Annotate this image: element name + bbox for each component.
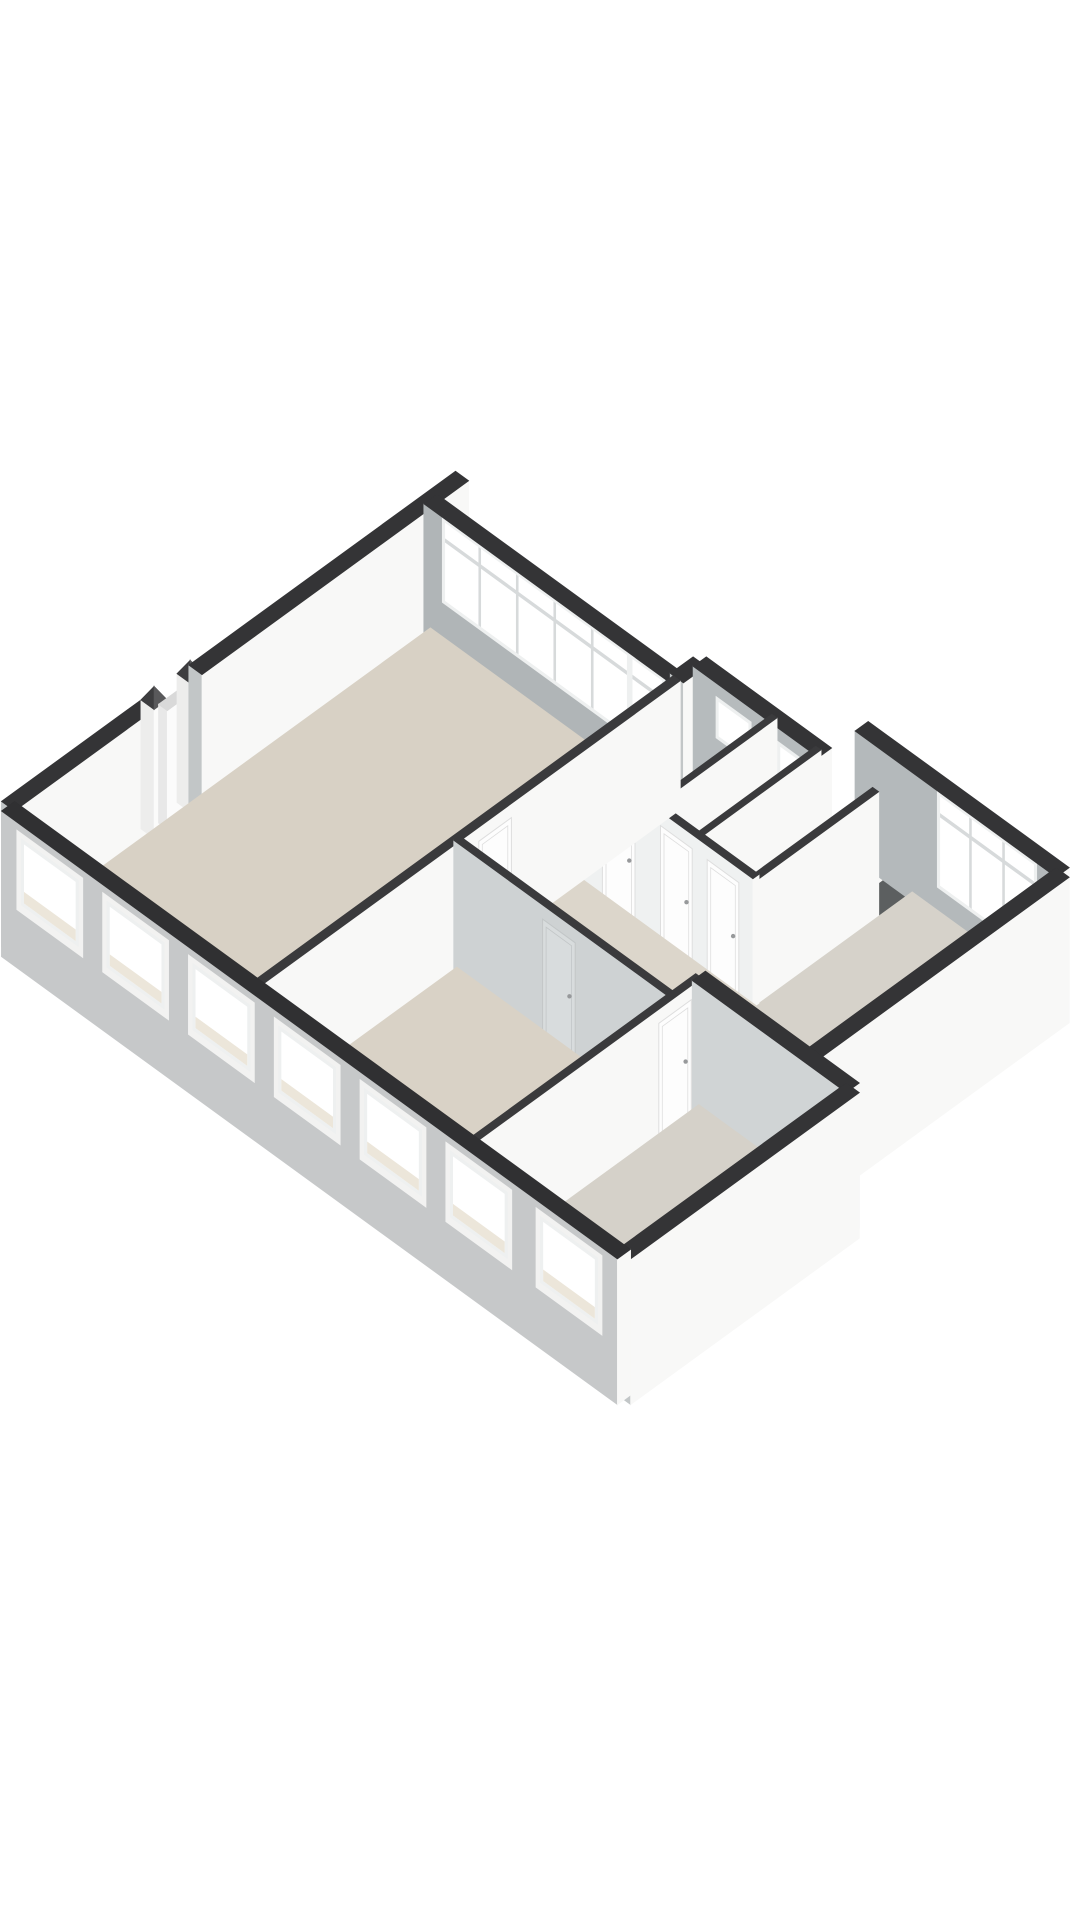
entry-post-2-face-l [177,674,190,812]
bath-block-sw-wall-end [753,874,759,1007]
living-window-band-wall-window-0-mullion [479,548,481,627]
bath-block-sw-wall-door-2-handle [731,934,735,938]
ne-wall-right-bedroom-window-0-mullion [970,818,972,908]
entry-door-face-l [159,704,168,829]
corridor-sw-wall-door-0-handle [567,994,571,998]
sw-facade-end [617,1249,630,1404]
bath-block-sw-wall-door-0-handle [627,858,631,862]
living-window-band-wall-window-0-mullion [516,575,518,654]
entry-post-1-face-l [141,700,154,838]
floorplan-3d-view [0,0,1080,1920]
bedroom-3-nw-wall-door-0-handle [683,1059,687,1063]
floorplan-page [0,0,1080,1920]
living-window-band-wall-window-0-mullion [554,602,556,681]
living-window-band-wall-window-0-mullion [591,630,593,709]
bath-block-sw-wall-door-1-handle [684,900,688,904]
